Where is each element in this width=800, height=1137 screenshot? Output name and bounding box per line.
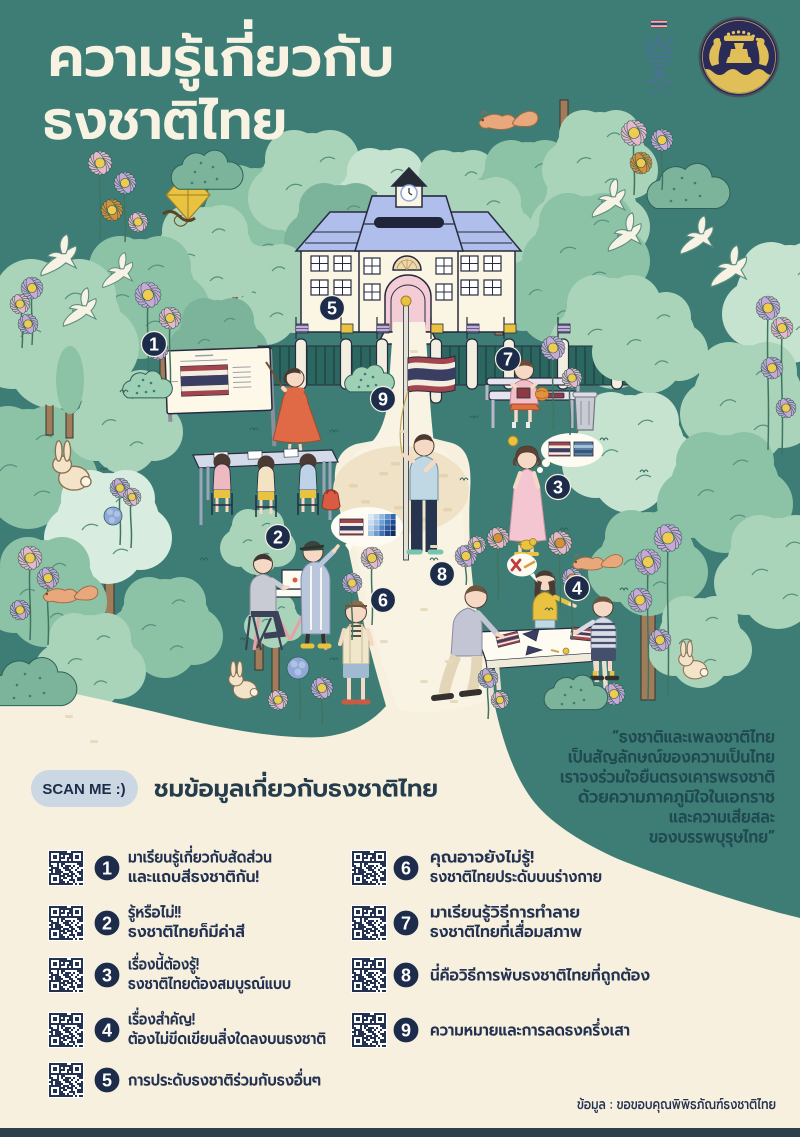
svg-text:5: 5 <box>327 299 337 319</box>
svg-text:SCAN ME :): SCAN ME :) <box>42 781 125 798</box>
svg-text:7: 7 <box>401 914 411 934</box>
svg-text:9: 9 <box>378 390 388 410</box>
svg-text:1: 1 <box>149 335 159 355</box>
svg-text:2: 2 <box>273 528 283 548</box>
svg-text:6: 6 <box>401 859 411 879</box>
svg-text:8: 8 <box>401 966 411 986</box>
svg-text:9: 9 <box>401 1021 411 1041</box>
svg-text:3: 3 <box>102 966 112 986</box>
svg-text:4: 4 <box>102 1021 112 1041</box>
svg-text:4: 4 <box>572 579 582 599</box>
svg-text:8: 8 <box>437 565 447 585</box>
svg-text:5: 5 <box>102 1071 112 1091</box>
svg-text:7: 7 <box>503 350 513 370</box>
svg-text:3: 3 <box>553 478 563 498</box>
svg-text:2: 2 <box>102 914 112 934</box>
svg-text:6: 6 <box>378 591 388 611</box>
svg-text:1: 1 <box>102 859 112 879</box>
